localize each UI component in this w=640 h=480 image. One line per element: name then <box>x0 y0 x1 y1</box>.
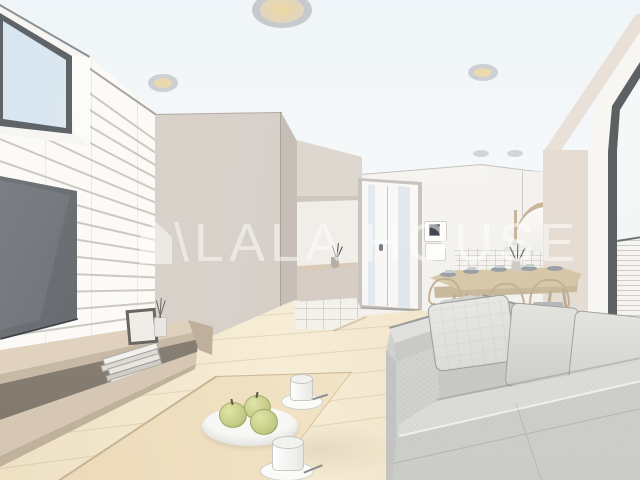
coffee-cup-rim <box>290 374 313 384</box>
recessed-light-glow <box>474 68 492 77</box>
apple <box>219 402 247 428</box>
reed-diffuser-bottle <box>154 317 167 337</box>
recessed-light-glow <box>154 78 172 88</box>
watermark-text: \LALA HOUSE <box>174 210 580 276</box>
recessed-light <box>507 150 523 157</box>
house-icon <box>140 222 172 264</box>
apple <box>250 409 278 435</box>
coffee-cup-rim <box>272 436 304 449</box>
watermark: \LALA HOUSE <box>140 210 620 276</box>
throw-pillow <box>427 294 518 373</box>
interior-render: \LALA HOUSE <box>0 0 640 480</box>
recessed-light <box>473 150 489 157</box>
